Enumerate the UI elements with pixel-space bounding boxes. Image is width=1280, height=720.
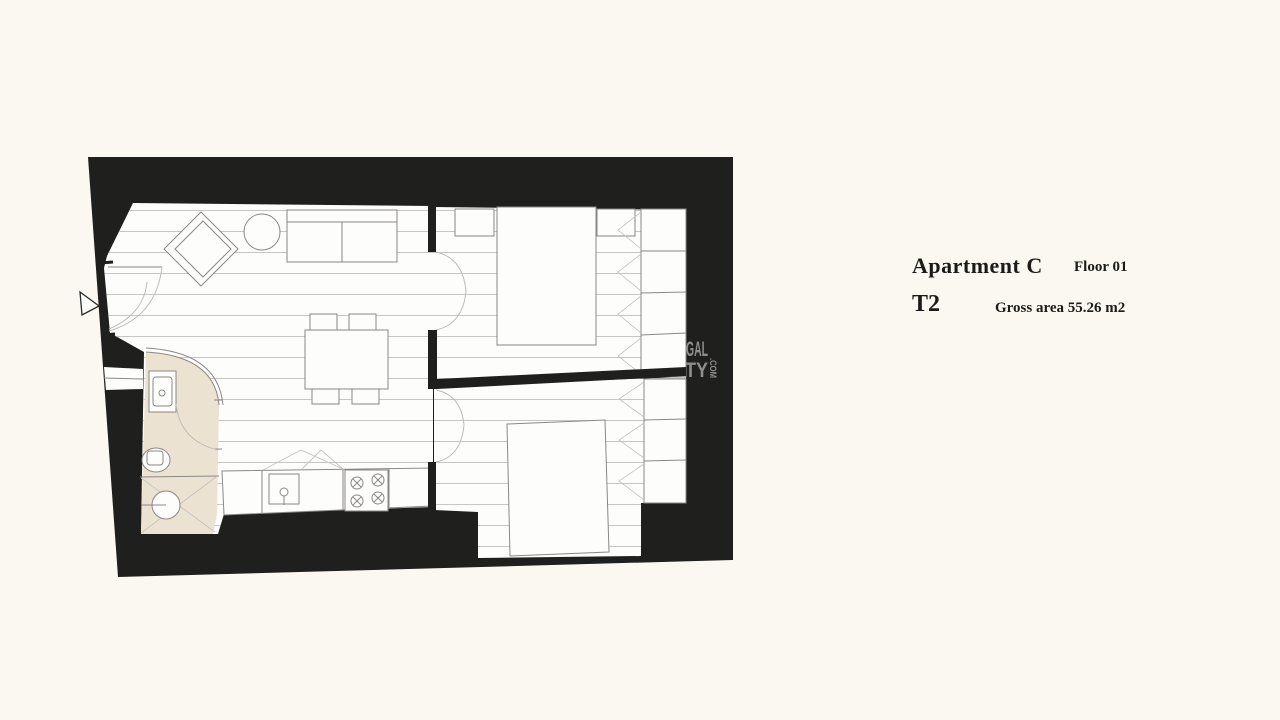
real-estate-floorplan-page: GAL TY .COM Apartment C Floor 01 T2 Gros…: [0, 0, 1280, 720]
bed-1: [497, 207, 596, 345]
nightstand: [597, 209, 635, 236]
dining-table: [305, 330, 388, 389]
entrance-arrow-icon: [80, 292, 99, 315]
sofa: [287, 210, 397, 262]
dining-chair: [352, 388, 379, 404]
floor-plan: GAL TY .COM: [0, 0, 1280, 720]
round-side-table: [244, 214, 280, 250]
dining-chair: [349, 314, 376, 331]
floor-label: Floor 01: [1074, 259, 1127, 276]
apartment-name: Apartment C: [912, 253, 1043, 279]
toilet: [142, 448, 170, 472]
dining-chair: [312, 388, 339, 404]
gross-area-label: Gross area 55.26 m2: [995, 300, 1125, 317]
kitchen-hob: [345, 470, 388, 511]
bathroom-sink: [149, 371, 176, 412]
watermark-fragment-bottom: TY: [685, 359, 708, 382]
watermark-fragment-suffix: .COM: [708, 358, 718, 378]
nightstand: [455, 209, 494, 236]
kitchen-sink: [269, 474, 299, 505]
left-wall-window: [104, 367, 143, 390]
typology-label: T2: [912, 291, 940, 318]
watermark-fragment-top: GAL: [686, 338, 708, 361]
dining-chair: [310, 314, 337, 331]
bed-2: [507, 420, 609, 556]
